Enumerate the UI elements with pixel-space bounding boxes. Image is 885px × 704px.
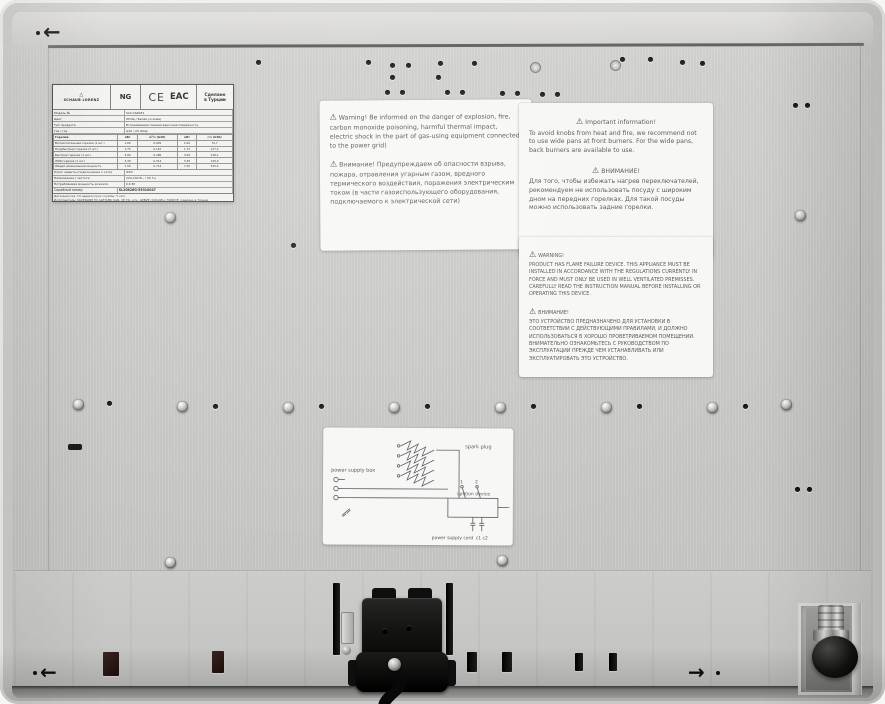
vent-hole (107, 401, 112, 406)
dome-screw-icon (601, 402, 612, 413)
plate-spec-rows: Модель №SLK GS6031ЦветWhite / Белая (осн… (53, 110, 233, 134)
wiring-label-spark: spark plug (465, 444, 491, 450)
washer-screw-icon (530, 62, 541, 73)
vent-hole (319, 404, 324, 409)
dome-screw-icon (795, 210, 806, 221)
vent-slot (103, 652, 119, 676)
extra-value: 0,6 Вт (125, 182, 233, 187)
spec-label: Модель № (53, 110, 125, 115)
warning-sticker-explosion: ⚠Warning! Be informed on the danger of e… (319, 99, 532, 250)
table-cell: 7,50 (177, 163, 196, 169)
ce-mark: CE (148, 91, 165, 104)
spec-value: Встраиваемая газовая варочная поверхност… (125, 122, 233, 127)
plate-extra-rows: Класс защиты (подключение к сети)IP20Нап… (53, 170, 233, 188)
warning-triangle-icon: ⚠ (330, 160, 337, 169)
power-cable (350, 678, 470, 704)
stamped-dash (68, 444, 82, 450)
terminal-box-hole (406, 625, 412, 631)
wiring-label-capacitors: c1 c2 (476, 535, 488, 541)
spec-value: G20 / 20 мбар (125, 128, 233, 133)
left-seam-line (48, 45, 49, 571)
flame-failure-warning-sticker: ⚠WARNING! PRODUCT HAS FLAME FAILURE DEVI… (519, 237, 713, 377)
certification-marks: CE EAC (141, 85, 197, 109)
vent-hole (805, 103, 810, 108)
vent-slot (467, 652, 477, 672)
bottom-right-arrow-marking: → (688, 662, 705, 682)
vent-hole (291, 243, 296, 248)
extra-label: Класс защиты (подключение к сети) (53, 170, 125, 175)
vent-hole (406, 63, 411, 68)
wiring-diagram-sticker: power supply box spark plug ignition dev… (323, 428, 514, 546)
gas-type-cell: NG (111, 85, 141, 109)
info-title-en: ⚠Important information! (529, 116, 703, 128)
arrow-dot (36, 31, 40, 35)
gas-hob-back-panel-photo: ← ← → △ SCHAUB LORENZ NG CE EAC Сделано … (0, 0, 885, 704)
terminal-box-hole (382, 628, 388, 634)
dome-screw-icon (495, 402, 506, 413)
spec-value: White / Белая (основа) (125, 116, 233, 121)
dome-screw-icon (707, 402, 718, 413)
bottom-left-arrow-marking: ← (40, 662, 57, 682)
dome-screw-icon (389, 402, 400, 413)
vent-hole (500, 91, 505, 96)
table-cell: 0,714 (137, 163, 177, 169)
vent-hole (438, 61, 443, 66)
spec-value: SLK GS6031 (125, 110, 233, 115)
spec-label: Газ / газ (53, 128, 125, 133)
important-info-sticker: ⚠Important information! To avoid knobs f… (519, 103, 713, 257)
vent-slot (502, 652, 512, 672)
brand-cell: △ SCHAUB LORENZ (53, 85, 111, 109)
vent-hole (400, 90, 405, 95)
vent-hole (472, 61, 477, 66)
gas-inlet-cap (812, 636, 858, 678)
warning-triangle-icon: ⚠ (576, 117, 583, 126)
vent-hole (680, 60, 685, 65)
warning-triangle-icon: ⚠ (330, 113, 337, 122)
vent-hole (637, 404, 642, 409)
bracket-screw-icon (342, 646, 351, 655)
vent-hole (366, 60, 371, 65)
rating-plate: △ SCHAUB LORENZ NG CE EAC Сделано в Турц… (52, 84, 234, 202)
info-body-ru: Для того, чтобы избежать нагрев переключ… (529, 178, 703, 213)
extra-label: Напряжение / частота (53, 176, 125, 181)
vent-slot (575, 653, 583, 671)
wiring-label-cord: power supply cord (432, 535, 474, 541)
made-in-cell: Сделано в Турции (197, 85, 233, 109)
vent-hole (795, 487, 800, 492)
warning-text-ru: ⚠Внимание! Предупреждаем об опасности вз… (330, 157, 522, 206)
serial-number-row: Серийный номер SL20826G-55310047 (53, 188, 233, 195)
dome-screw-icon (165, 557, 176, 568)
vent-hole (555, 92, 560, 97)
vent-hole (620, 57, 625, 62)
wiring-label-switch1: 1 (460, 479, 463, 485)
plate-footer-text: Дата выпуска: 13 неделя (срок службы: 5 … (53, 194, 233, 202)
dome-screw-icon (165, 212, 176, 223)
warning-triangle-icon: ⚠ (529, 250, 536, 259)
top-fold-strip (12, 12, 873, 45)
dome-screw-icon (781, 399, 792, 410)
vent-hole (213, 404, 218, 409)
spec-label: Цвет (53, 116, 125, 121)
dome-screw-icon (497, 555, 508, 566)
wiring-label-ignition: ignition device (457, 491, 490, 497)
vent-hole (390, 63, 395, 68)
dome-screw-icon (283, 402, 294, 413)
table-row: Общая номинальная мощность7,500,7147,505… (54, 163, 233, 169)
vent-hole (700, 61, 705, 66)
vent-hole (648, 57, 653, 62)
vent-hole (531, 404, 536, 409)
wiring-label-switch2: 2 (475, 479, 478, 485)
wiring-diagram: power supply box spark plug ignition dev… (323, 428, 514, 546)
arrow-dot (33, 671, 37, 675)
flame-body-ru: ЭТО УСТРОЙСТВО ПРЕДНАЗНАЧЕНО ДЛЯ УСТАНОВ… (529, 319, 703, 363)
extra-value: 220-240 В~ / 50 Гц (125, 176, 233, 181)
warning-text-en: ⚠Warning! Be informed on the danger of e… (330, 110, 522, 150)
washer-screw-icon (610, 60, 621, 71)
table-cell: 7,50 (118, 163, 137, 169)
vent-hole (256, 60, 261, 65)
vent-slot (609, 653, 617, 671)
flame-title-en: ⚠WARNING! (529, 249, 703, 261)
warning-triangle-icon: ⚠ (592, 166, 599, 175)
wiring-label-power-box: power supply box (331, 468, 375, 474)
right-seam-line (860, 45, 861, 571)
vent-slot (333, 583, 340, 655)
eac-mark: EAC (170, 92, 189, 102)
vent-hole (743, 404, 748, 409)
flame-title-ru: ⚠ВНИМАНИЕ! (529, 306, 703, 318)
serial-label: Серийный номер (53, 188, 118, 194)
vent-hole (436, 75, 441, 80)
info-title-ru: ⚠ВНИМАНИЕ! (529, 165, 703, 177)
clamp-screw-icon (388, 658, 401, 671)
table-cell: Общая номинальная мощность (54, 163, 118, 169)
left-arrow-marking: ← (43, 22, 61, 43)
mounting-bracket (341, 612, 354, 644)
vent-hole (390, 75, 395, 80)
info-body-en: To avoid knobs from heat and fire, we re… (529, 130, 703, 156)
vent-hole (540, 92, 545, 97)
vent-hole (515, 91, 520, 96)
dome-screw-icon (177, 401, 188, 412)
vent-hole (445, 90, 450, 95)
brand-name: SCHAUB LORENZ (64, 98, 100, 102)
vent-hole (807, 487, 812, 492)
extra-value: IP20 (125, 170, 233, 175)
extra-label: Потребляемая мощность розжига (53, 182, 125, 187)
flame-body-en: PRODUCT HAS FLAME FAILURE DEVICE. THIS A… (529, 262, 703, 299)
arrow-dot (716, 671, 720, 675)
dome-screw-icon (73, 399, 84, 410)
serial-value: SL20826G-55310047 (118, 188, 233, 194)
vent-hole (793, 103, 798, 108)
warning-triangle-icon: ⚠ (529, 307, 536, 316)
vent-hole (425, 404, 430, 409)
spec-label: Тип продукта (53, 122, 125, 127)
vent-slot (446, 583, 453, 655)
vent-hole (460, 90, 465, 95)
burner-spec-table: ГорелкикВтм³/ч (G20)кВтг/ч (G30)Вспомога… (53, 134, 233, 170)
vent-slot (212, 651, 224, 673)
table-cell: 545,4 (197, 163, 233, 169)
rating-plate-header: △ SCHAUB LORENZ NG CE EAC Сделано в Турц… (53, 85, 233, 110)
vent-hole (385, 90, 390, 95)
